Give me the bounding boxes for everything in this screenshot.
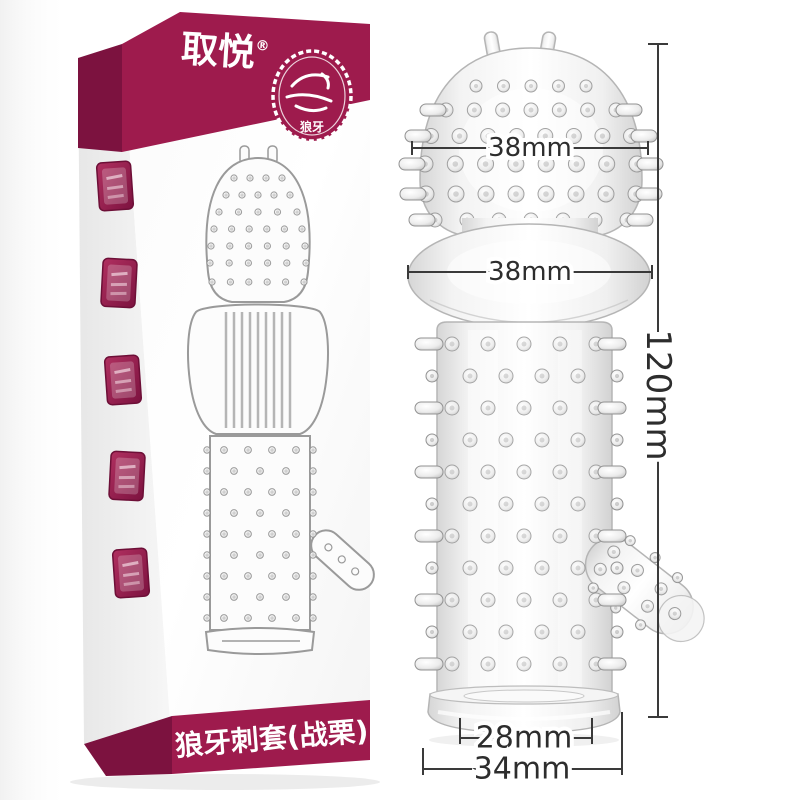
- seal-stamp-icon: [101, 258, 137, 308]
- wolf-badge: 狼牙: [273, 51, 351, 141]
- nub-dot: [573, 191, 579, 197]
- nub-dot: [450, 342, 455, 347]
- dim-base-width-label: 34mm: [474, 752, 571, 787]
- nub-dot: [556, 84, 560, 88]
- nub-dot: [295, 533, 297, 535]
- dim-head-width-label: 38mm: [488, 133, 572, 163]
- nub-dot: [223, 533, 225, 535]
- nub-dot: [259, 554, 261, 556]
- seal-mark: [118, 486, 134, 488]
- nub-dot: [223, 449, 225, 451]
- seal-mark: [123, 573, 139, 575]
- edge-spike: [415, 594, 443, 606]
- nub-dot: [285, 245, 287, 247]
- nub-dot: [266, 281, 268, 283]
- nub-dot: [615, 438, 619, 442]
- nub-dot: [522, 534, 527, 539]
- nub-dot: [247, 575, 249, 577]
- nub-dot: [304, 245, 306, 247]
- nub-dot: [468, 630, 473, 635]
- nub-dot: [557, 108, 562, 113]
- nub-dot: [558, 342, 563, 347]
- nub-dot: [206, 575, 208, 577]
- edge-spike: [598, 530, 626, 542]
- nub-dot: [600, 133, 605, 138]
- nub-dot: [430, 630, 434, 634]
- nub-dot: [430, 502, 434, 506]
- nub-dot: [206, 596, 208, 598]
- nub-dot: [500, 108, 505, 113]
- nub-dot: [233, 512, 235, 514]
- nub-dot: [540, 566, 545, 571]
- nub-dot: [486, 662, 491, 667]
- dim-opening-width-label: 28mm: [476, 721, 573, 756]
- edge-spike: [415, 530, 443, 542]
- nub-dot: [271, 617, 273, 619]
- nub-dot: [273, 194, 275, 196]
- nub-dot: [558, 406, 563, 411]
- dim-total-length-label: 120mm: [638, 329, 678, 460]
- nub-dot: [248, 245, 250, 247]
- edge-spike: [598, 338, 626, 350]
- nub-dot: [237, 211, 239, 213]
- illustration-head: [206, 158, 309, 302]
- nub-dot: [615, 566, 619, 570]
- seal-mark: [116, 389, 132, 391]
- nub-dot: [501, 84, 505, 88]
- seal-stamp-icon: [109, 451, 145, 501]
- nub-dot: [312, 533, 314, 535]
- nub-dot: [211, 281, 213, 283]
- nub-dot: [259, 512, 261, 514]
- nub-dot: [266, 228, 268, 230]
- nub-dot: [576, 502, 581, 507]
- nub-dot: [248, 228, 250, 230]
- nub-dot: [206, 617, 208, 619]
- nub-dot: [259, 596, 261, 598]
- nub-dot: [472, 108, 477, 113]
- edge-spike: [598, 658, 626, 670]
- edge-spike: [400, 188, 426, 200]
- nub-dot: [576, 438, 581, 443]
- seal-stamp-icon: [104, 355, 141, 405]
- background-vignette: [0, 0, 70, 800]
- nub-dot: [558, 534, 563, 539]
- nub-dot: [285, 596, 287, 598]
- edge-spike: [415, 338, 443, 350]
- nub-dot: [576, 630, 581, 635]
- nub-dot: [295, 617, 297, 619]
- nub-dot: [529, 108, 534, 113]
- nub-dot: [271, 575, 273, 577]
- nub-dot: [522, 598, 527, 603]
- nub-dot: [267, 262, 269, 264]
- dim-opening-width: 28mm: [460, 718, 592, 756]
- nub-dot: [296, 211, 298, 213]
- nub-dot: [312, 617, 314, 619]
- edge-spike: [637, 158, 663, 170]
- nub-dot: [312, 575, 314, 577]
- edge-spike: [631, 130, 657, 142]
- nub-dot: [225, 194, 227, 196]
- nub-dot: [247, 533, 249, 535]
- seal-mark: [111, 273, 127, 276]
- product-photo: 取悦® 狼牙 狼: [0, 0, 800, 800]
- nub-dot: [430, 374, 434, 378]
- nub-dot: [289, 194, 291, 196]
- nub-dot: [249, 177, 251, 179]
- nub-dot: [615, 502, 619, 506]
- seal-mark: [110, 293, 126, 295]
- nub-dot: [229, 245, 231, 247]
- nub-dot: [430, 438, 434, 442]
- nub-dot: [233, 596, 235, 598]
- seal-mark: [124, 582, 140, 584]
- nub-dot: [231, 228, 233, 230]
- nub-dot: [468, 566, 473, 571]
- box-shadow: [70, 774, 380, 790]
- nub-dot: [285, 470, 287, 472]
- nub-dot: [229, 281, 231, 283]
- seal-mark: [119, 477, 135, 479]
- nub-dot: [474, 84, 478, 88]
- nub-dot: [615, 630, 619, 634]
- nub-dot: [574, 161, 580, 167]
- registered-mark: ®: [255, 38, 270, 55]
- nub-dot: [218, 211, 220, 213]
- nub-dot: [468, 502, 473, 507]
- nub-dot: [241, 194, 243, 196]
- nub-dot: [259, 470, 261, 472]
- nub-dot: [504, 566, 509, 571]
- nub-dot: [513, 191, 519, 197]
- nub-dot: [522, 406, 527, 411]
- nub-dot: [450, 534, 455, 539]
- nub-dot: [571, 133, 576, 138]
- nub-dot: [584, 84, 588, 88]
- nub-dot: [233, 554, 235, 556]
- nub-dot: [281, 177, 283, 179]
- nub-dot: [223, 575, 225, 577]
- nub-dot: [223, 617, 225, 619]
- badge-label: 狼牙: [300, 119, 324, 134]
- nub-dot: [210, 245, 212, 247]
- nub-dot: [540, 630, 545, 635]
- nub-dot: [585, 108, 590, 113]
- nub-dot: [295, 575, 297, 577]
- box-top-band-side: [78, 44, 122, 152]
- nub-dot: [248, 281, 250, 283]
- nub-dot: [504, 630, 509, 635]
- nub-dot: [223, 491, 225, 493]
- nub-dot: [504, 374, 509, 379]
- nub-dot: [276, 211, 278, 213]
- nub-dot: [233, 470, 235, 472]
- seal-mark: [111, 284, 127, 286]
- nub-dot: [486, 406, 491, 411]
- nub-dot: [468, 374, 473, 379]
- product-photo-stage: 取悦® 狼牙 狼: [0, 0, 800, 800]
- nub-dot: [285, 281, 287, 283]
- nub-dot: [457, 133, 462, 138]
- nub-dot: [286, 262, 288, 264]
- nub-dot: [576, 566, 581, 571]
- nub-dot: [312, 449, 314, 451]
- nub-dot: [504, 438, 509, 443]
- edge-spike: [415, 466, 443, 478]
- nub-dot: [295, 491, 297, 493]
- nub-dot: [312, 512, 314, 514]
- nub-dot: [206, 470, 208, 472]
- nub-dot: [213, 228, 215, 230]
- nub-dot: [285, 512, 287, 514]
- edge-spike: [598, 466, 626, 478]
- nub-dot: [486, 534, 491, 539]
- nub-dot: [483, 191, 489, 197]
- nub-dot: [543, 191, 549, 197]
- nub-dot: [450, 470, 455, 475]
- edge-spike: [598, 594, 626, 606]
- nub-dot: [303, 281, 305, 283]
- nub-dot: [247, 449, 249, 451]
- nub-dot: [486, 598, 491, 603]
- nub-dot: [522, 662, 527, 667]
- edge-spike: [627, 214, 653, 226]
- nub-dot: [604, 161, 610, 167]
- seal-mark: [115, 380, 131, 382]
- nub-dot: [540, 374, 545, 379]
- nub-dot: [285, 554, 287, 556]
- nub-dot: [266, 245, 268, 247]
- nub-dot: [295, 449, 297, 451]
- edge-spike: [616, 104, 642, 116]
- nub-dot: [271, 449, 273, 451]
- nub-dot: [233, 177, 235, 179]
- nub-dot: [257, 194, 259, 196]
- seal-stamp-icon: [112, 548, 149, 598]
- nub-dot: [603, 191, 609, 197]
- dim-bulb-width-label: 38mm: [488, 257, 572, 287]
- nub-dot: [312, 491, 314, 493]
- nub-dot: [206, 554, 208, 556]
- nub-dot: [206, 449, 208, 451]
- nub-dot: [257, 211, 259, 213]
- nub-dot: [468, 438, 473, 443]
- edge-spike: [598, 402, 626, 414]
- nub-dot: [247, 617, 249, 619]
- nub-dot: [522, 470, 527, 475]
- nub-dot: [576, 374, 581, 379]
- nub-dot: [247, 262, 249, 264]
- nub-dot: [312, 596, 314, 598]
- nub-dot: [540, 502, 545, 507]
- edge-spike: [399, 158, 425, 170]
- edge-spike: [415, 658, 443, 670]
- nub-dot: [301, 228, 303, 230]
- nub-dot: [265, 177, 267, 179]
- nub-dot: [312, 470, 314, 472]
- nub-dot: [228, 262, 230, 264]
- nub-dot: [206, 512, 208, 514]
- nub-dot: [312, 554, 314, 556]
- nub-dot: [486, 342, 491, 347]
- nub-dot: [558, 470, 563, 475]
- nub-dot: [615, 374, 619, 378]
- seal-mark: [119, 466, 135, 469]
- nub-dot: [209, 262, 211, 264]
- nub-dot: [430, 566, 434, 570]
- nub-dot: [247, 491, 249, 493]
- nub-dot: [271, 491, 273, 493]
- nub-dot: [450, 406, 455, 411]
- product-box: 取悦® 狼牙 狼: [70, 12, 380, 790]
- nub-dot: [271, 533, 273, 535]
- nub-dot: [558, 598, 563, 603]
- nub-dot: [522, 342, 527, 347]
- nub-dot: [558, 662, 563, 667]
- seal-mark: [108, 195, 124, 197]
- nub-dot: [283, 228, 285, 230]
- nub-dot: [450, 662, 455, 667]
- nub-dot: [206, 491, 208, 493]
- edge-spike: [409, 214, 435, 226]
- nub-dot: [540, 438, 545, 443]
- edge-spike: [415, 402, 443, 414]
- nub-dot: [450, 598, 455, 603]
- nub-dot: [504, 502, 509, 507]
- nub-dot: [486, 470, 491, 475]
- nub-dot: [305, 262, 307, 264]
- edge-spike: [405, 130, 431, 142]
- seal-mark: [107, 186, 123, 188]
- base-inner-opening: [464, 690, 584, 702]
- edge-spike: [420, 104, 446, 116]
- seal-stamp-icon: [96, 161, 133, 211]
- nub-dot: [206, 533, 208, 535]
- nub-dot: [453, 191, 459, 197]
- nub-dot: [452, 161, 458, 167]
- nub-dot: [529, 84, 533, 88]
